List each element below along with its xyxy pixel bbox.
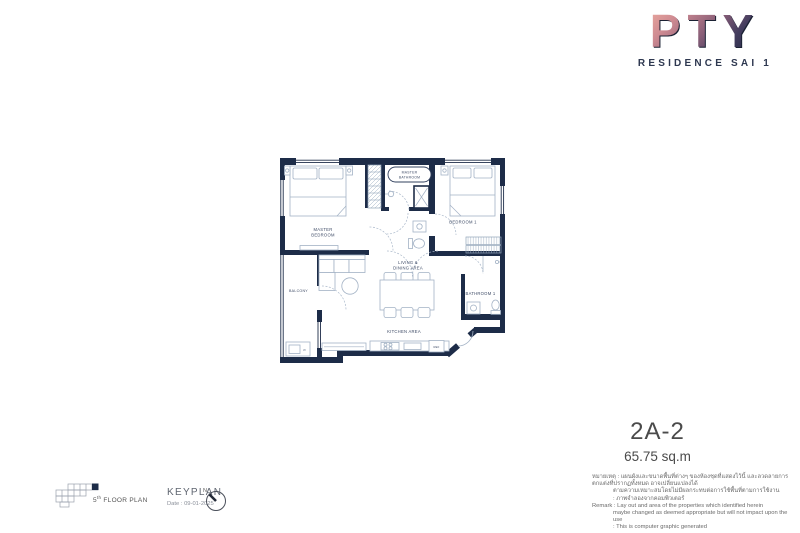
remark-en-3: : This is computer graphic generated (592, 524, 797, 531)
label-ref: REF (433, 345, 439, 349)
keyplan-unit-highlight (92, 484, 99, 491)
label-bathroom1: BATHROOM 1 (466, 291, 496, 296)
brand-wordmark: PTY (650, 8, 760, 54)
remark-thai-1: หมายเหตุ : แผนผังและขนาดพื้นที่ต่างๆ ของ… (592, 474, 797, 488)
balcony-fixtures (286, 342, 310, 356)
master-bathroom-fixtures (385, 186, 429, 211)
bathroom1-fixtures (465, 256, 501, 314)
label-master-bathroom-2: BATHROOM (399, 176, 420, 180)
label-master-bathroom-1: MASTER (402, 171, 418, 175)
floorplan-diagram: MASTER BATHROOM MASTER BEDROOM BEDROOM 1… (277, 150, 527, 375)
label-bedroom1: BEDROOM 1 (449, 220, 477, 225)
unit-code: 2A-2 (595, 418, 720, 446)
remarks: หมายเหตุ : แผนผังและขนาดพื้นที่ต่างๆ ของ… (592, 474, 797, 532)
remark-thai-2: ตามความเหมาะสมโดยไม่มีผลกระทบต่อการใช้พื… (592, 488, 797, 495)
label-master-bedroom-1: MASTER (314, 227, 333, 232)
remark-en-2: maybe changed as deemed appropriate but … (592, 510, 797, 524)
label-living-2: DINING AREA (393, 266, 423, 271)
remark-en-1: Remark : Lay out and area of the propert… (592, 503, 797, 510)
label-master-bedroom-2: BEDROOM (311, 233, 335, 238)
floor-plan-label: 5th FLOOR PLAN (93, 495, 148, 504)
unit-info: 2A-2 65.75 sq.m (595, 418, 720, 464)
wc-fixtures (387, 213, 426, 249)
compass-icon: N (199, 484, 233, 518)
unit-area: 65.75 sq.m (595, 449, 720, 464)
label-balcony: BALCONY (289, 289, 308, 293)
brand-logo: PTY RESIDENCE SAI 1 (615, 8, 795, 69)
bedroom1-furniture (435, 166, 495, 235)
label-living-1: LIVING & (398, 260, 418, 265)
label-kitchen: KITCHEN AREA (387, 329, 421, 334)
label-washer: W (303, 348, 306, 352)
remark-thai-3: : ภาพจำลองจากคอมพิวเตอร์ (592, 496, 797, 503)
master-bathroom-capsule (388, 167, 431, 182)
compass-north-label: N (203, 488, 207, 494)
brand-subtitle: RESIDENCE SAI 1 (615, 58, 795, 69)
